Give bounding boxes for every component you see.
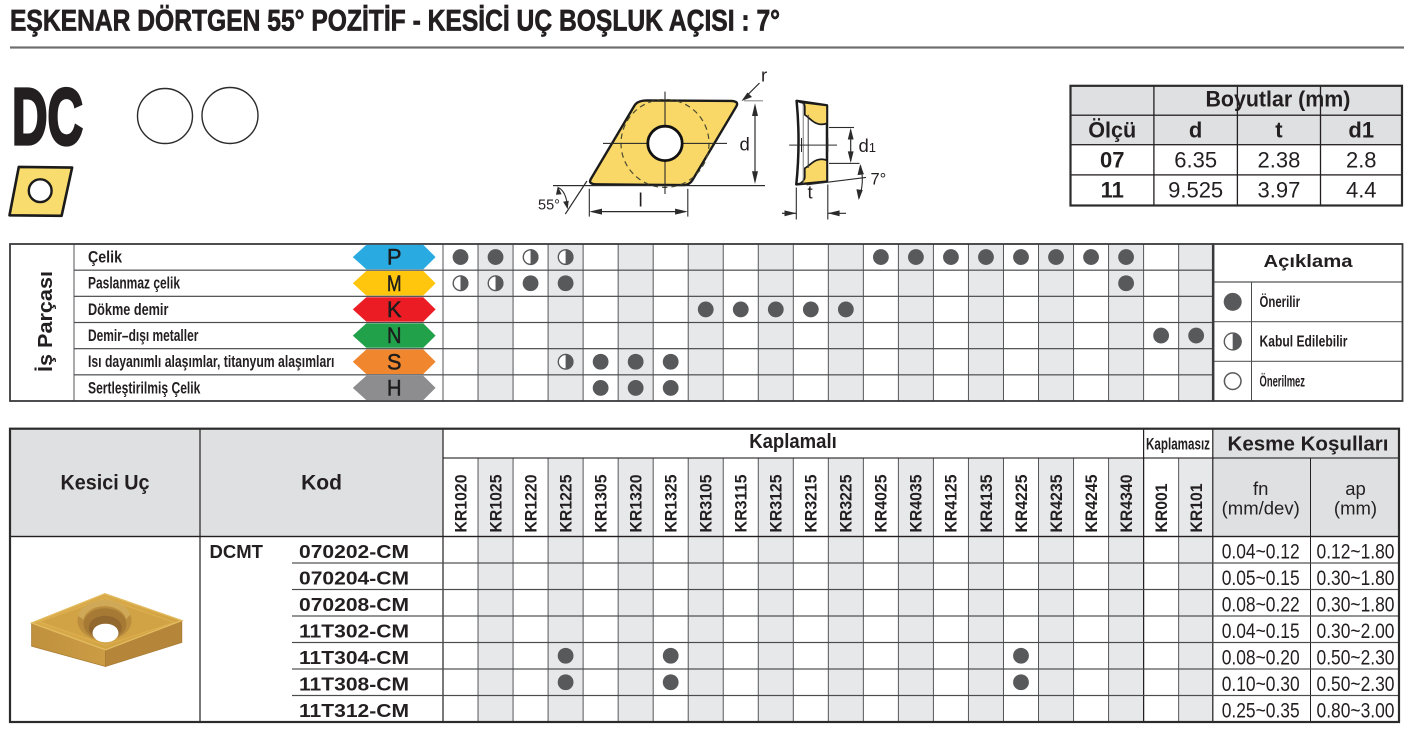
svg-text:t: t (808, 182, 813, 203)
svg-text:H: H (387, 376, 402, 401)
svg-text:KR3225: KR3225 (838, 475, 856, 533)
svg-text:KR1305: KR1305 (592, 475, 610, 533)
svg-text:KR4245: KR4245 (1083, 475, 1101, 533)
svg-text:0.10~0.30: 0.10~0.30 (1222, 673, 1300, 696)
svg-text:fn: fn (1253, 478, 1268, 499)
svg-text:0.12~1.80: 0.12~1.80 (1317, 540, 1395, 563)
svg-text:0.08~0.22: 0.08~0.22 (1222, 593, 1300, 616)
svg-text:KR3105: KR3105 (698, 475, 716, 533)
svg-text:DCMT: DCMT (210, 541, 264, 562)
svg-text:0.04~0.12: 0.04~0.12 (1222, 540, 1300, 563)
svg-text:Kod: Kod (301, 472, 342, 495)
svg-text:Demir–dışı metaller: Demir–dışı metaller (88, 327, 199, 345)
svg-text:0.08~0.20: 0.08~0.20 (1222, 646, 1300, 669)
svg-text:0.80~3.00: 0.80~3.00 (1317, 699, 1395, 722)
svg-text:KR4340: KR4340 (1118, 475, 1136, 533)
svg-text:0.04~0.15: 0.04~0.15 (1222, 620, 1300, 643)
svg-text:6.35: 6.35 (1174, 147, 1217, 172)
svg-text:M: M (387, 271, 402, 296)
svg-text:Ölçü: Ölçü (1088, 117, 1136, 142)
svg-text:0.05~0.15: 0.05~0.15 (1222, 567, 1300, 590)
svg-text:KR1025: KR1025 (487, 475, 505, 533)
svg-text:Isı dayanımlı alaşımlar, titan: Isı dayanımlı alaşımlar, titanyum alaşım… (88, 353, 334, 371)
svg-text:Paslanmaz çelik: Paslanmaz çelik (88, 275, 181, 293)
svg-text:l: l (639, 191, 643, 212)
svg-text:t: t (1275, 117, 1283, 142)
svg-text:4.4: 4.4 (1346, 178, 1377, 203)
svg-text:KR4025: KR4025 (873, 475, 891, 533)
svg-text:KR1225: KR1225 (557, 475, 575, 533)
svg-text:9.525: 9.525 (1168, 178, 1223, 203)
svg-text:0.30~1.80: 0.30~1.80 (1317, 593, 1395, 616)
svg-text:KR3215: KR3215 (803, 475, 821, 533)
svg-text:Çelik: Çelik (88, 248, 123, 266)
svg-text:Önerilmez: Önerilmez (1260, 371, 1306, 390)
svg-text:11T302-CM: 11T302-CM (299, 620, 409, 641)
svg-text:d: d (740, 133, 750, 154)
svg-text:0.50~2.30: 0.50~2.30 (1317, 673, 1395, 696)
svg-text:KR1320: KR1320 (627, 475, 645, 533)
svg-text:070204-CM: 070204-CM (299, 567, 409, 588)
svg-text:N: N (387, 323, 402, 348)
svg-text:Önerilir: Önerilir (1260, 292, 1301, 311)
svg-text:55°: 55° (538, 198, 560, 214)
svg-text:7°: 7° (871, 171, 887, 189)
svg-text:İş Parçası: İş Parçası (34, 271, 57, 372)
svg-text:2.38: 2.38 (1258, 147, 1301, 172)
svg-text:K: K (387, 297, 402, 322)
svg-text:Boyutlar (mm): Boyutlar (mm) (1205, 87, 1350, 112)
svg-text:Kaplamalı: Kaplamalı (749, 431, 837, 453)
svg-text:3.97: 3.97 (1258, 178, 1301, 203)
svg-text:Kesici Uç: Kesici Uç (61, 472, 150, 495)
svg-text:KR101: KR101 (1188, 484, 1206, 533)
svg-text:Kesme Koşulları: Kesme Koşulları (1228, 433, 1389, 456)
svg-text:KR4125: KR4125 (943, 475, 961, 533)
svg-text:r: r (761, 65, 767, 86)
svg-text:KR3125: KR3125 (768, 475, 786, 533)
svg-text:ap: ap (1345, 478, 1366, 499)
svg-text:070202-CM: 070202-CM (299, 541, 409, 562)
svg-text:Dökme demir: Dökme demir (88, 301, 169, 319)
svg-text:KR3115: KR3115 (733, 475, 751, 533)
svg-text:KR1220: KR1220 (522, 475, 540, 533)
svg-text:Kaplamasız: Kaplamasız (1146, 435, 1210, 454)
svg-text:1: 1 (869, 140, 876, 155)
svg-text:Kabul Edilebilir: Kabul Edilebilir (1260, 334, 1348, 351)
svg-text:Açıklama: Açıklama (1264, 251, 1353, 271)
svg-text:(mm/dev): (mm/dev) (1222, 498, 1300, 519)
svg-text:KR4235: KR4235 (1048, 475, 1066, 533)
svg-text:KR4225: KR4225 (1013, 475, 1031, 533)
svg-text:EŞKENAR DÖRTGEN 55° POZİTİF -: EŞKENAR DÖRTGEN 55° POZİTİF - KESİCİ UÇ … (10, 5, 780, 38)
svg-text:0.30~2.00: 0.30~2.00 (1317, 620, 1395, 643)
svg-text:d: d (1189, 117, 1202, 142)
svg-text:0.50~2.30: 0.50~2.30 (1317, 646, 1395, 669)
svg-text:KR4135: KR4135 (978, 475, 996, 533)
svg-text:11T312-CM: 11T312-CM (299, 700, 409, 721)
svg-text:KR4035: KR4035 (908, 475, 926, 533)
svg-text:07: 07 (1100, 147, 1124, 172)
svg-text:P: P (387, 245, 402, 270)
svg-text:S: S (387, 349, 402, 374)
svg-text:2.8: 2.8 (1346, 147, 1377, 172)
svg-text:11T304-CM: 11T304-CM (299, 647, 409, 668)
svg-text:(mm): (mm) (1334, 498, 1377, 519)
svg-text:070208-CM: 070208-CM (299, 594, 409, 615)
svg-text:d: d (859, 135, 869, 156)
svg-text:d1: d1 (1348, 117, 1374, 142)
svg-text:KR1020: KR1020 (452, 475, 470, 533)
svg-text:Sertleştirilmiş Çelik: Sertleştirilmiş Çelik (88, 379, 201, 397)
svg-text:KR001: KR001 (1153, 484, 1171, 533)
svg-text:DC: DC (12, 72, 83, 161)
svg-text:KR1325: KR1325 (662, 475, 680, 533)
svg-text:11: 11 (1101, 178, 1124, 203)
svg-text:11T308-CM: 11T308-CM (299, 673, 409, 694)
svg-text:0.25~0.35: 0.25~0.35 (1222, 699, 1300, 722)
svg-text:0.30~1.80: 0.30~1.80 (1317, 567, 1395, 590)
